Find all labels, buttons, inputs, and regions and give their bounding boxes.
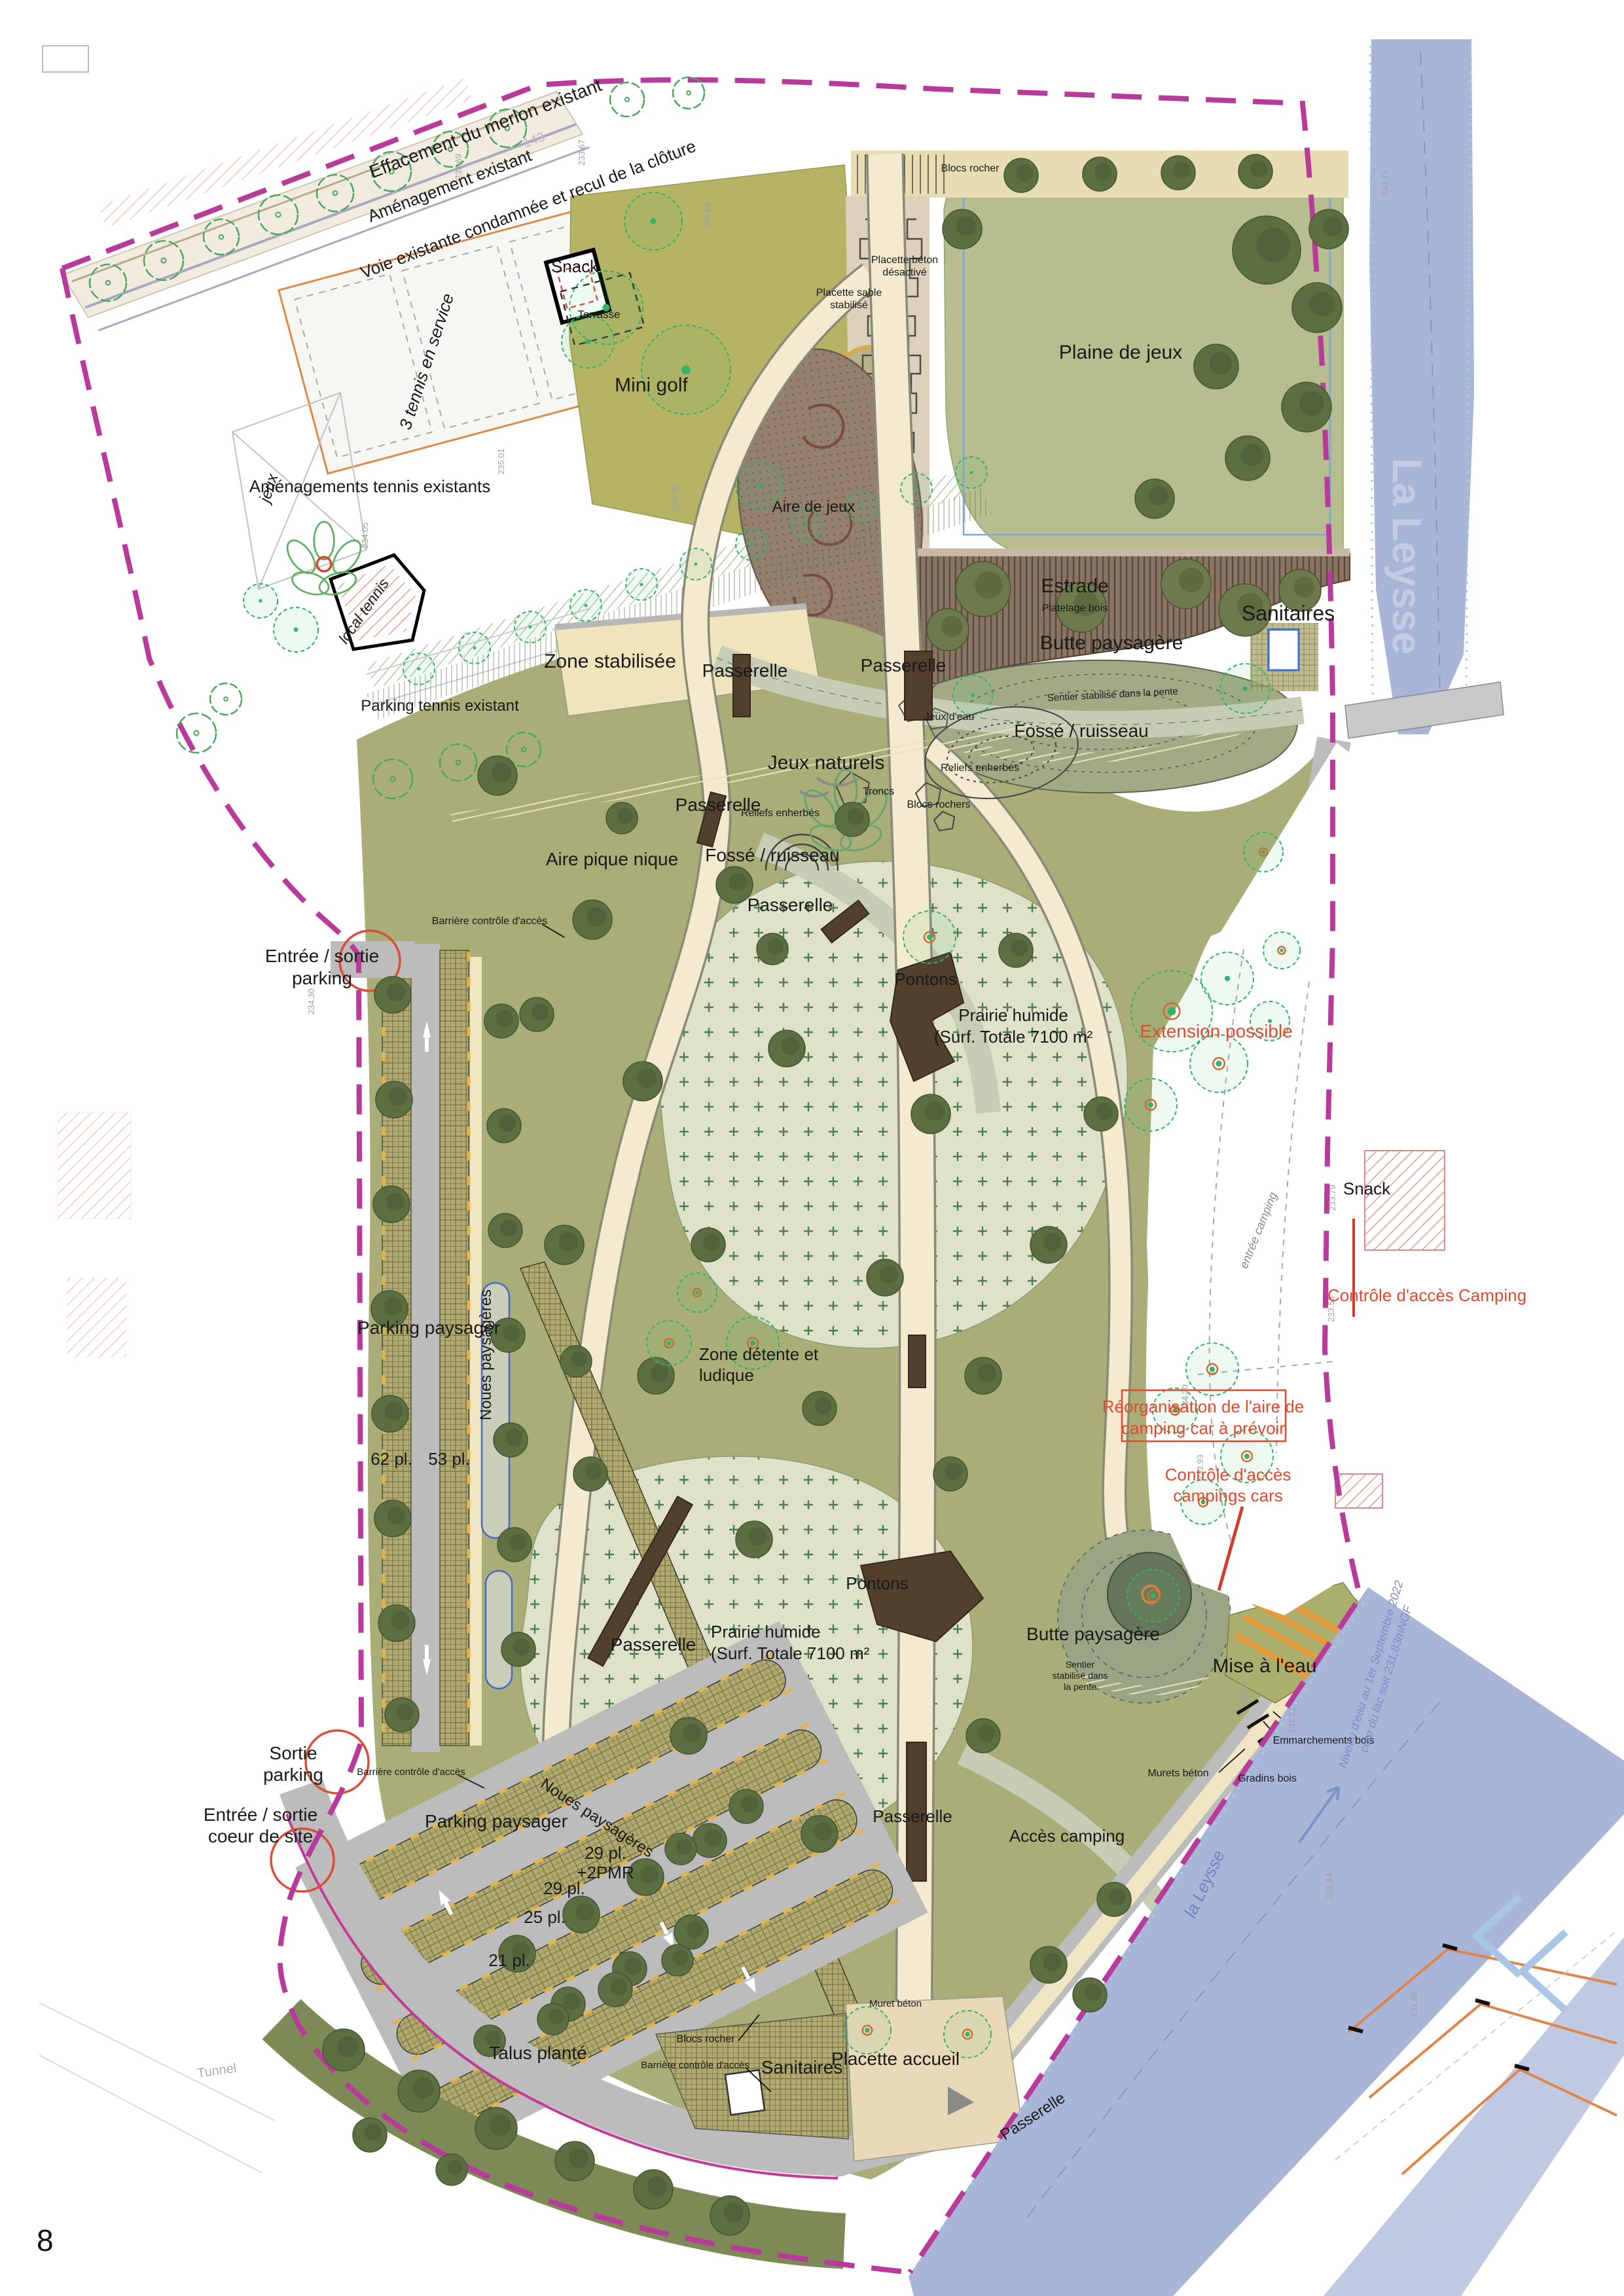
map-label: Talus planté: [489, 2043, 586, 2063]
tree-d: [1309, 209, 1348, 249]
map-label: Passerelle: [873, 1806, 952, 1826]
tree-d: [662, 1945, 693, 1976]
survey-mark: 233.79: [1327, 1185, 1337, 1211]
map-label: Zone stabilisée: [544, 651, 676, 672]
map-label: Snack: [551, 257, 599, 276]
map-label: Contrôle d'accès Camping: [1327, 1285, 1526, 1305]
tree-g: [647, 1321, 691, 1365]
tree-b: [736, 529, 767, 560]
tree-d: [1282, 382, 1331, 432]
tree-d: [736, 1521, 772, 1558]
tree-d: [1292, 283, 1342, 332]
survey-mark: 233.64: [702, 203, 712, 229]
map-label: Barrière contrôle d'accès: [357, 1767, 465, 1778]
tree-b: [569, 271, 643, 344]
tree-d: [1004, 158, 1038, 192]
tree-d: [374, 977, 411, 1013]
tree-d: [478, 756, 517, 795]
tree-g: [1125, 1079, 1177, 1131]
tree-g: [1127, 1570, 1180, 1622]
map-label: Pontons: [846, 1573, 908, 1593]
tree-g: [1190, 1035, 1248, 1092]
tree-d: [965, 1357, 1001, 1394]
survey-mark: 235.01: [496, 448, 506, 475]
tree-b: [459, 632, 490, 664]
map-label: Muret béton: [869, 1998, 922, 2009]
page-number: 8: [37, 2223, 54, 2258]
survey-mark: 232.84: [1324, 1873, 1334, 1899]
map-label: 29 pl.+2PMR: [577, 1843, 634, 1882]
map-label: Blocs rocher: [677, 2034, 736, 2045]
tree-d: [1225, 436, 1270, 480]
tree-b: [1201, 952, 1254, 1005]
cadastral-left: [39, 46, 275, 2173]
tree-d: [520, 997, 554, 1031]
tree-d: [573, 1457, 607, 1491]
tree-d: [475, 2108, 517, 2149]
tree-b: [953, 675, 992, 715]
tree-d: [545, 1225, 584, 1265]
tree-k: [927, 609, 969, 651]
tree-d: [560, 1346, 592, 1377]
tree-b: [514, 611, 546, 643]
map-label: Placette accueil: [831, 2049, 960, 2069]
tree-d: [1084, 1097, 1118, 1131]
map-label: Reliefs enherbés: [741, 808, 820, 819]
tree-b: [680, 548, 712, 580]
map-label: Troncs: [863, 786, 894, 797]
tree-d: [1097, 1882, 1131, 1916]
tree-d: [1083, 157, 1117, 191]
map-label: 21 pl.: [488, 1950, 530, 1970]
map-label: 29 pl.: [543, 1878, 585, 1898]
map-label: Extension possible: [1140, 1021, 1292, 1041]
survey-mark: 234.05: [360, 522, 370, 548]
map-label: Noues paysagères: [477, 1289, 495, 1420]
tree-b: [570, 590, 602, 621]
map-label: Passerelle: [702, 660, 788, 681]
map-label: Butte paysagère: [1040, 632, 1183, 654]
map-label: Jeux d'eau: [924, 711, 975, 723]
tree-d: [757, 933, 788, 965]
tree-b: [956, 457, 987, 488]
tree-k: [1161, 559, 1211, 609]
map-label: Barrière contrôle d'accès: [432, 916, 547, 927]
tree-b: [641, 325, 731, 414]
tree-d: [693, 1823, 727, 1857]
tree-d: [943, 209, 982, 249]
tree-d: [374, 1500, 411, 1537]
map-label: Passerelle: [611, 1634, 696, 1655]
tree-d: [674, 1915, 708, 1949]
tree-d: [801, 1816, 838, 1852]
tree-d: [1161, 156, 1195, 190]
survey-mark: 231.66: [1409, 1991, 1419, 2017]
tree-d: [966, 1719, 1000, 1753]
tree-d: [691, 1228, 725, 1262]
tree-d: [555, 2142, 594, 2181]
map-label: 25 pl.: [524, 1907, 566, 1927]
tree-o: [210, 683, 242, 715]
map-label: Barrière contrôle d'accès: [641, 2060, 749, 2071]
map-label: Accès camping: [1009, 1826, 1125, 1846]
tree-d: [537, 2003, 569, 2035]
tree-d: [1135, 479, 1174, 518]
map-label: Tunnel: [196, 2061, 238, 2081]
tree-d: [487, 1109, 521, 1143]
tree-d: [634, 2170, 673, 2209]
tree-d: [573, 900, 612, 939]
map-label: Blocs rochers: [907, 799, 971, 810]
map-label: Jeux naturels: [768, 752, 884, 774]
tree-d: [1238, 154, 1272, 188]
tree-d: [398, 2070, 440, 2112]
tree-d: [488, 1213, 522, 1247]
tree-d: [353, 2118, 387, 2152]
survey-mark: 230.89: [1239, 1681, 1249, 1707]
tree-b: [244, 584, 278, 618]
tree-d: [1073, 1978, 1107, 2012]
tree-d: [372, 1395, 408, 1432]
map-label: Aménagements tennis existants: [249, 476, 491, 496]
tree-d: [623, 1062, 662, 1101]
map-label: Mini golf: [615, 374, 688, 396]
map-label: Parking paysager: [425, 1811, 568, 1831]
map-label: Sortieparking: [263, 1743, 323, 1785]
plan-sheet: 233.69233.67233.64233.71234.05235.01235.…: [0, 0, 1624, 2296]
tree-d: [933, 1457, 967, 1491]
map-label: Sanitaires: [761, 2057, 843, 2077]
tree-b: [274, 607, 318, 652]
tree-d: [999, 933, 1033, 967]
tree-g: [844, 2007, 891, 2054]
map-label: Mise à l'eau: [1212, 1655, 1316, 1677]
tree-g: [903, 911, 956, 963]
map-label: La Leysse: [1384, 458, 1429, 655]
tree-d: [803, 1391, 837, 1426]
tree-g: [677, 1273, 717, 1312]
map-label: Plaine de jeux: [1059, 342, 1182, 363]
map-label: Butte paysagère: [1026, 1624, 1160, 1644]
tree-d: [323, 2029, 365, 2071]
map-label: Gradins bois: [1238, 1773, 1297, 1784]
tree-d: [598, 1973, 632, 2007]
tree-d: [768, 1030, 805, 1067]
map-label: 53 pl.: [428, 1449, 470, 1469]
tree-b: [901, 473, 932, 505]
tree-d: [563, 1896, 600, 1933]
tree-d: [1030, 1227, 1067, 1263]
tree-d: [501, 1632, 535, 1666]
tree-d: [606, 802, 638, 834]
tree-d: [835, 802, 869, 836]
tree-b: [626, 569, 657, 600]
tree-d: [378, 1605, 415, 1641]
map-label: Aire de jeux: [772, 498, 856, 516]
map-label: Fossé / ruisseau: [705, 845, 839, 865]
map-label: Passerelle: [861, 655, 947, 675]
tree-d: [1194, 344, 1238, 389]
tree-g: [1244, 833, 1283, 872]
tree-d: [436, 2154, 467, 2185]
survey-mark: 235.09: [670, 484, 679, 511]
camping-snack-building: [1365, 1151, 1445, 1250]
survey-mark: 234.30: [306, 988, 316, 1014]
survey-mark: 231.21: [1287, 1707, 1297, 1733]
tree-d: [867, 1259, 903, 1296]
map-label: Snack: [1343, 1179, 1391, 1198]
tree-d: [911, 1094, 950, 1134]
tree-d: [484, 1004, 518, 1038]
map-label: Reliefs enherbés: [941, 762, 1019, 774]
tree-d: [1030, 1946, 1067, 1983]
site-plan-drawing: 233.69233.67233.64233.71234.05235.01235.…: [0, 0, 1624, 2296]
map-label: Platelage bois: [1042, 603, 1108, 614]
tree-g: [1186, 1343, 1238, 1395]
tree-b: [1220, 664, 1270, 713]
tree-b: [403, 653, 435, 685]
tree-d: [1233, 216, 1301, 284]
map-label: Sanitaires: [1242, 601, 1335, 625]
tree-d: [494, 1423, 528, 1457]
map-label: Blocs rocher: [941, 163, 1000, 174]
map-label: Fossé / ruisseau: [1014, 721, 1148, 741]
tree-k: [956, 562, 1011, 617]
map-label: Estrade: [1041, 575, 1108, 597]
map-label: Pontons: [894, 969, 956, 989]
tree-d: [729, 1789, 763, 1823]
map-label: 62 pl.: [370, 1449, 412, 1469]
map-label: Parking tennis existant: [361, 697, 519, 715]
map-label: Murets béton: [1147, 1768, 1208, 1779]
tree-d: [376, 1081, 412, 1118]
tree-d: [497, 1528, 532, 1562]
tree-d: [710, 2196, 749, 2235]
survey-mark: 233.67: [577, 139, 586, 166]
map-label: Passerelle: [748, 895, 833, 915]
tree-o: [610, 82, 644, 117]
tree-d: [665, 1833, 696, 1865]
map-label: Terrasse: [577, 308, 620, 321]
map-label: Aire pique nique: [546, 849, 678, 869]
estrade-edge: [916, 548, 1350, 556]
tree-d: [385, 1698, 419, 1732]
tree-d: [670, 1717, 707, 1754]
tree-d: [373, 1186, 410, 1223]
tree-g: [1263, 932, 1300, 969]
survey-mark: 233.71: [1380, 170, 1390, 196]
tree-b: [624, 192, 682, 250]
